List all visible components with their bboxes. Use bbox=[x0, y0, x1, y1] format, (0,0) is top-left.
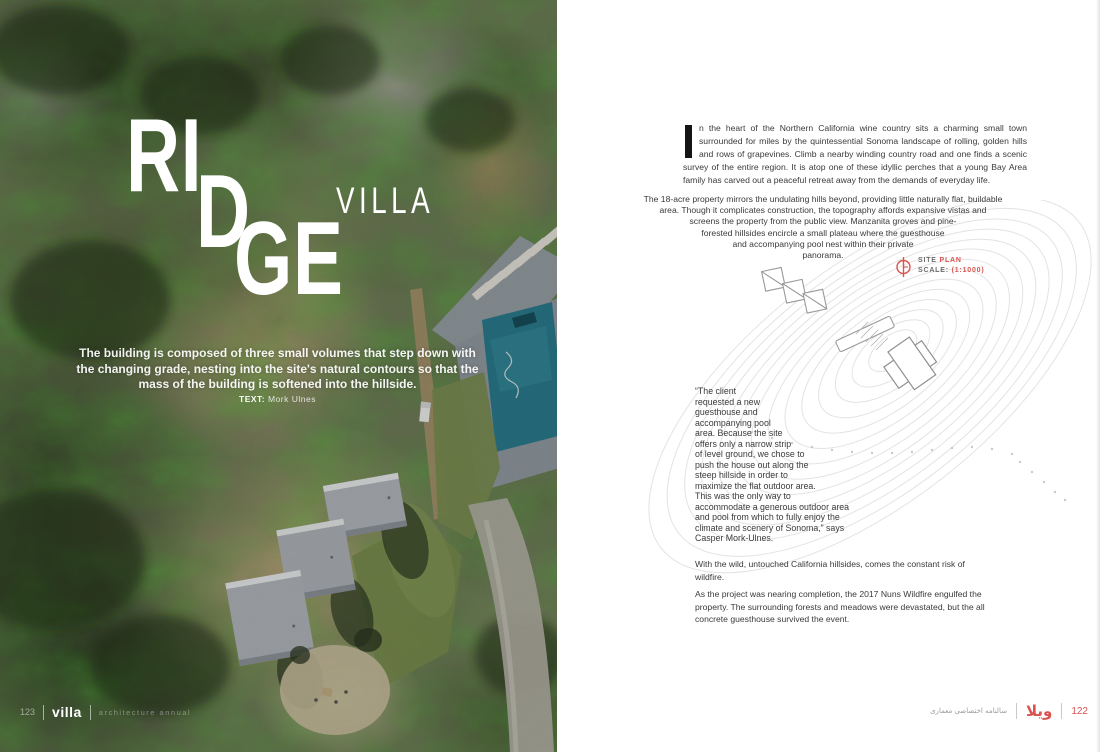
paragraph-intro: I n the heart of the Northern California… bbox=[683, 122, 1027, 187]
paragraph-wildfire-risk: With the wild, untouched California hill… bbox=[695, 558, 995, 583]
title-part-ge: GE bbox=[234, 207, 344, 311]
byline: TEXT: Mork Ulnes bbox=[75, 394, 480, 404]
page-stack-edge bbox=[1096, 0, 1100, 752]
title-subtitle: VILLA bbox=[336, 180, 434, 222]
left-page: RI D GE VILLA The building is composed o… bbox=[0, 0, 557, 752]
left-page-number: 123 bbox=[20, 707, 35, 717]
magazine-spread: RI D GE VILLA The building is composed o… bbox=[0, 0, 1100, 752]
paragraph-intro-text: n the heart of the Northern California w… bbox=[683, 123, 1027, 185]
paragraph-property: The 18-acre property mirrors the undulat… bbox=[621, 194, 1025, 261]
byline-value: Mork Ulnes bbox=[268, 394, 316, 404]
villa-farsi-logo: ویلا bbox=[1026, 702, 1052, 720]
paragraph-nuns-wildfire: As the project was nearing completion, t… bbox=[695, 588, 997, 626]
right-page-footer: سالنامه اختصاصی معماری ویلا 122 bbox=[930, 702, 1088, 720]
plan-stepping-volumes bbox=[762, 260, 827, 321]
left-page-footer: 123 villa architecture annual bbox=[20, 704, 191, 720]
drop-cap: I bbox=[685, 125, 692, 158]
footer-divider bbox=[1061, 703, 1062, 719]
annual-farsi-text: سالنامه اختصاصی معماری bbox=[930, 707, 1007, 715]
scale-label: SCALE: bbox=[918, 267, 949, 274]
right-page-number: 122 bbox=[1071, 706, 1088, 717]
standfirst: The building is composed of three small … bbox=[75, 346, 480, 393]
footer-divider bbox=[90, 705, 91, 720]
scale-value: (1:1000) bbox=[952, 267, 985, 274]
right-page: SITE PLAN SCALE: (1:1000) I n the heart … bbox=[557, 0, 1100, 752]
architect-quote: “The client requested a new guesthouse a… bbox=[695, 386, 917, 584]
magazine-name: villa bbox=[52, 704, 82, 720]
footer-divider bbox=[1016, 703, 1017, 719]
title-part-ri: RI bbox=[126, 104, 202, 208]
footer-divider bbox=[43, 705, 44, 720]
byline-label: TEXT: bbox=[239, 394, 265, 404]
magazine-tagline: architecture annual bbox=[99, 708, 191, 717]
